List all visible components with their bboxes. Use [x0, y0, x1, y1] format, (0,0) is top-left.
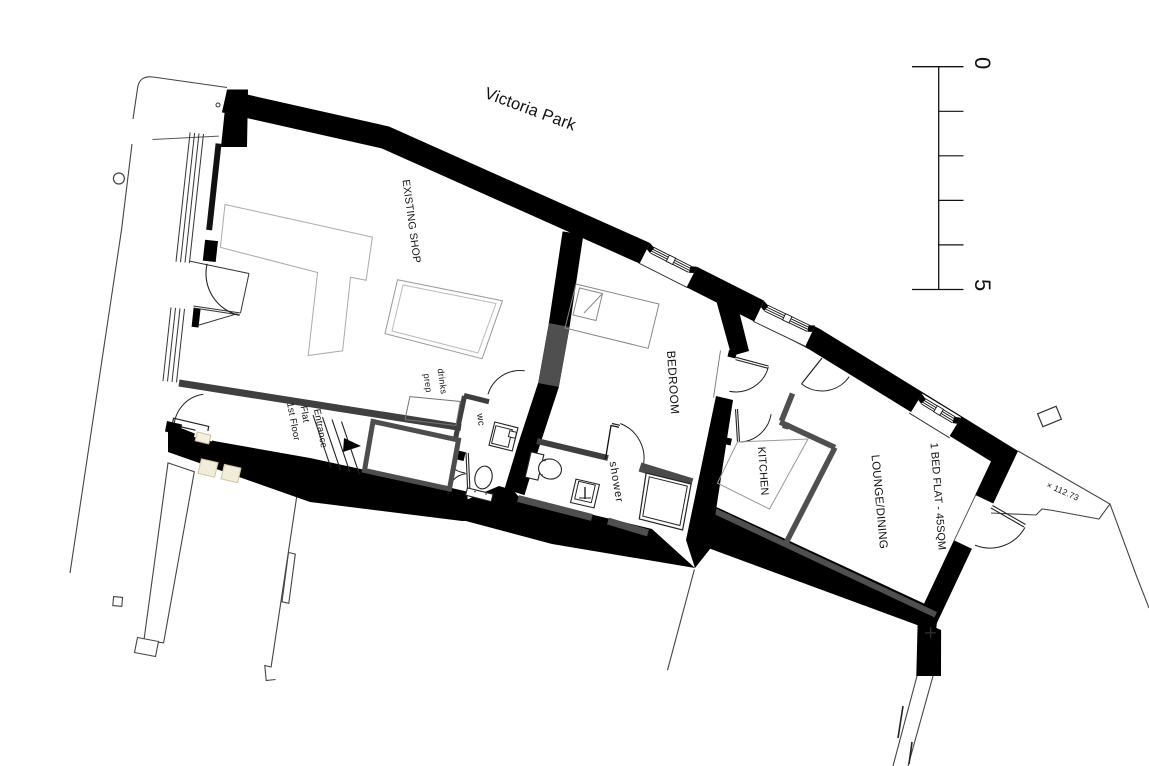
svg-text:0: 0	[970, 57, 995, 69]
svg-text:5: 5	[970, 279, 995, 291]
svg-text:wc: wc	[474, 412, 487, 427]
